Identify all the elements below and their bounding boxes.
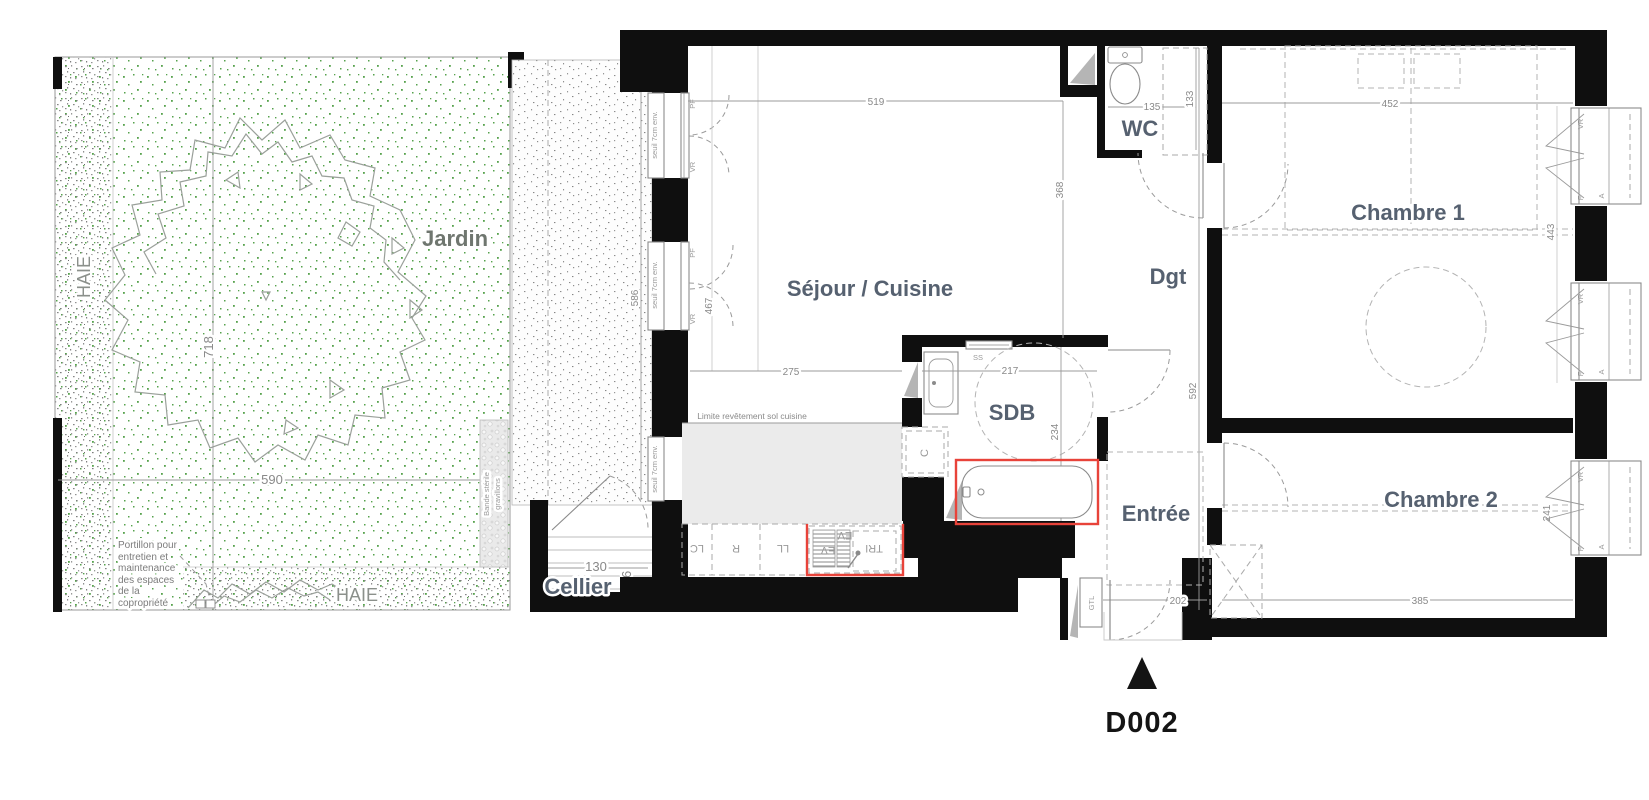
dim-bedroom1-window: 443 — [1546, 223, 1557, 240]
bathroom-wedge — [904, 362, 918, 398]
unit-ev-label-2: EV — [820, 544, 835, 556]
east-window-2: VR F A — [1546, 283, 1641, 380]
bedrooms-dividing-wall — [1222, 418, 1573, 433]
unit-number-label: D002 — [1105, 707, 1178, 739]
gate-note-line-6: copropriété — [118, 598, 168, 609]
bedroom1-room: 452 443 Chambre 1 — [1222, 46, 1573, 387]
window-e3-vr: VR — [1576, 471, 1585, 482]
gate-note-line-1: Portillon pour — [118, 540, 178, 551]
bed1-pillow-left — [1358, 54, 1404, 88]
unit-tri-label: TRI — [865, 542, 883, 554]
window-e2-f: F — [1576, 371, 1585, 376]
threshold-note-2: seuil 7cm env. — [650, 261, 659, 308]
window-e2-a: A — [1597, 369, 1606, 374]
technical-shaft — [1210, 545, 1262, 618]
bedroom1-circle — [1366, 267, 1486, 387]
unit-ll-label: LL — [777, 542, 789, 554]
hedge-left-band — [55, 57, 113, 610]
window-e3-f: F — [1576, 546, 1585, 551]
dim-living-width: 519 — [868, 97, 885, 108]
bathroom-wedge-2 — [946, 481, 962, 520]
bedroom1-label: Chambre 1 — [1351, 200, 1465, 225]
bathtub-icon — [962, 466, 1092, 518]
terrace-surface — [512, 60, 652, 505]
dim-bathroom-width: 217 — [1002, 366, 1019, 377]
garden-area: Jardin HAIE HAIE 718 590 Bande stérile g… — [53, 52, 524, 612]
wc-label: WC — [1122, 116, 1159, 141]
threshold-note-3: seuil 7cm env. — [650, 445, 659, 492]
gate-note-line-2: entretien et — [118, 552, 168, 563]
dim-bedroom2-width: 385 — [1412, 596, 1429, 607]
bedroom2-label: Chambre 2 — [1384, 487, 1498, 512]
floor-plan-page: Jardin HAIE HAIE 718 590 Bande stérile g… — [0, 0, 1649, 800]
window2-pf-label: PF — [688, 248, 697, 258]
window1-vr-label: VR — [688, 161, 697, 172]
dim-kitchen-width: 275 — [783, 367, 800, 378]
dim-entry-height: 592 — [1188, 382, 1199, 399]
east-windows: VR F A VR F A VR F A — [1546, 108, 1641, 555]
kitchen-south-wall — [620, 577, 918, 612]
east-window-3: VR F A — [1546, 461, 1641, 555]
kitchen-floor-note: Limite revêtement sol cuisine — [697, 411, 807, 421]
dim-wc-width: 135 — [1144, 102, 1161, 113]
dim-wc-height: 133 — [1185, 90, 1196, 107]
unit-ev-label: EV — [837, 529, 852, 541]
entrance-porch — [1104, 612, 1182, 640]
building-walls — [620, 30, 1607, 640]
gate-icon-2 — [206, 600, 215, 608]
wc-niche-wedge — [1070, 53, 1095, 85]
kitchen-floor — [682, 423, 902, 524]
window1-pf-label: PF — [688, 99, 697, 109]
cellar-label: Cellier — [544, 574, 612, 599]
bedroom2-south-wall — [1207, 618, 1607, 637]
gravel-strip-label-2: gravillons — [493, 478, 502, 510]
entrance-wedge — [1070, 585, 1078, 638]
gtl-duct-label: GTL — [1087, 596, 1096, 611]
window-e3-a: A — [1597, 544, 1606, 549]
bathroom-door-swing-arc — [1108, 350, 1170, 412]
wc-south-wall — [1097, 150, 1142, 158]
wc-door-swing-arc — [1138, 153, 1203, 218]
faucet-head-icon — [856, 551, 861, 556]
garden-wall-mark-top-left — [53, 57, 62, 89]
gate-note-line-3: maintenance — [118, 563, 176, 574]
column-closet-label: C — [919, 449, 931, 457]
gravel-strip-label-1: Bande stérile — [482, 472, 491, 516]
north-wall — [620, 30, 1607, 46]
dim-garden-height: 718 — [201, 336, 216, 358]
gate-icon — [196, 600, 205, 608]
dim-bathroom-height: 234 — [1050, 423, 1061, 440]
bedroom2-room: 385 241 Chambre 2 — [1222, 443, 1573, 607]
gate-note-line-5: de la — [118, 586, 140, 597]
window-e1-a: A — [1597, 193, 1606, 198]
entrance-marker: D002 — [1105, 657, 1178, 739]
kitchen-units: LC R LL EV EV TRI — [682, 524, 903, 575]
unit-lc-label: LC — [690, 542, 704, 554]
dim-terrace-height: 586 — [630, 289, 641, 306]
dim-bedroom1-width: 452 — [1382, 99, 1399, 110]
window-e1-f: F — [1576, 195, 1585, 200]
toilet-cistern-icon — [1108, 47, 1142, 63]
garden-boundary — [55, 57, 510, 610]
dim-living-height: 368 — [1055, 181, 1066, 198]
entrance-arrow-icon — [1127, 657, 1157, 689]
towel-rail-label: SS — [973, 353, 983, 362]
entrance-door-swing-arc — [1110, 580, 1170, 640]
bedroom1-door-swing-arc — [1224, 164, 1288, 228]
dim-cellar-width: 130 — [585, 559, 607, 574]
hallway-label: Dgt — [1150, 264, 1187, 289]
dim-garden-width: 590 — [261, 472, 283, 487]
hedge-bottom-label: HAIE — [336, 585, 378, 605]
unit-r-label: R — [732, 542, 740, 554]
garden-label: Jardin — [422, 226, 488, 251]
hedge-left-label: HAIE — [74, 256, 94, 298]
bathroom-label: SDB — [989, 400, 1035, 425]
living-room-label: Séjour / Cuisine — [787, 276, 953, 301]
gate-note-line-4: des espaces — [118, 575, 174, 586]
bed1-pillow-right — [1414, 54, 1460, 88]
window-e2-vr: VR — [1576, 293, 1585, 304]
northwest-corner — [620, 30, 654, 92]
garden-wall-mark-bottom-left — [53, 418, 62, 612]
dim-living-window: 467 — [704, 297, 715, 314]
east-window-1: VR F A — [1546, 108, 1641, 204]
threshold-note-1: seuil 7cm env. — [650, 111, 659, 158]
dim-entry-width: 202 — [1170, 596, 1187, 607]
wc-room: 135 133 WC — [1108, 47, 1207, 218]
floor-plan-drawing: Jardin HAIE HAIE 718 590 Bande stérile g… — [0, 0, 1649, 800]
terrace-area: 586 130 96 Cellier — [512, 60, 652, 612]
entry-label: Entrée — [1122, 501, 1190, 526]
toilet-bowl-icon — [1110, 64, 1140, 104]
bedroom2-door-swing-arc — [1224, 443, 1288, 507]
window-e1-vr: VR — [1576, 118, 1585, 129]
window2-vr-label: VR — [688, 313, 697, 324]
